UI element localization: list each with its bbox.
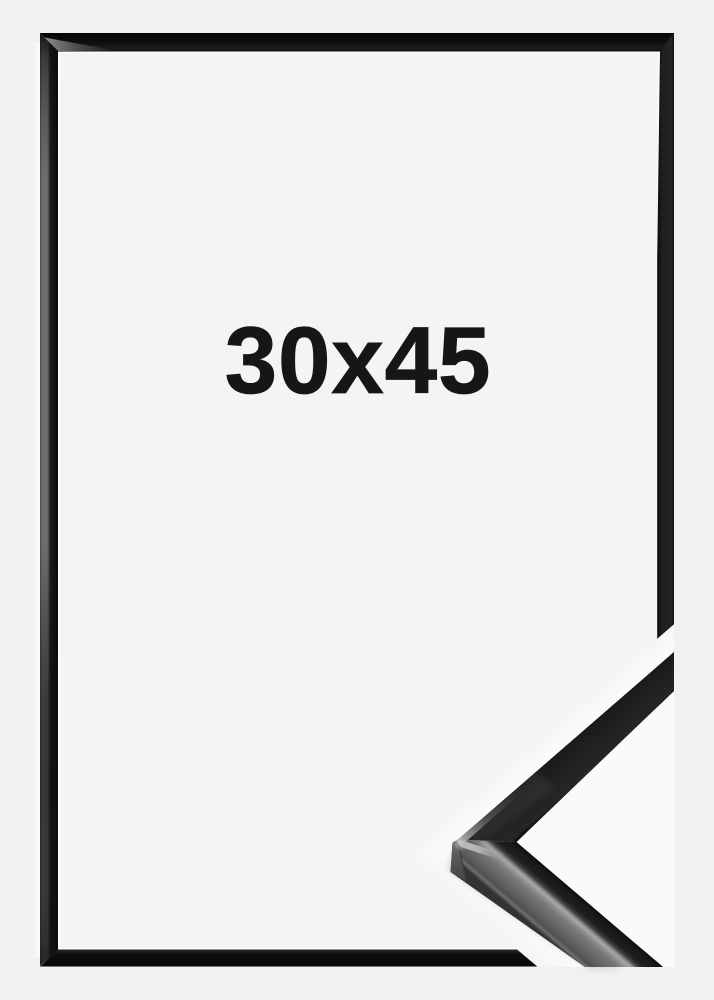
svg-text:30x45: 30x45	[225, 308, 492, 414]
